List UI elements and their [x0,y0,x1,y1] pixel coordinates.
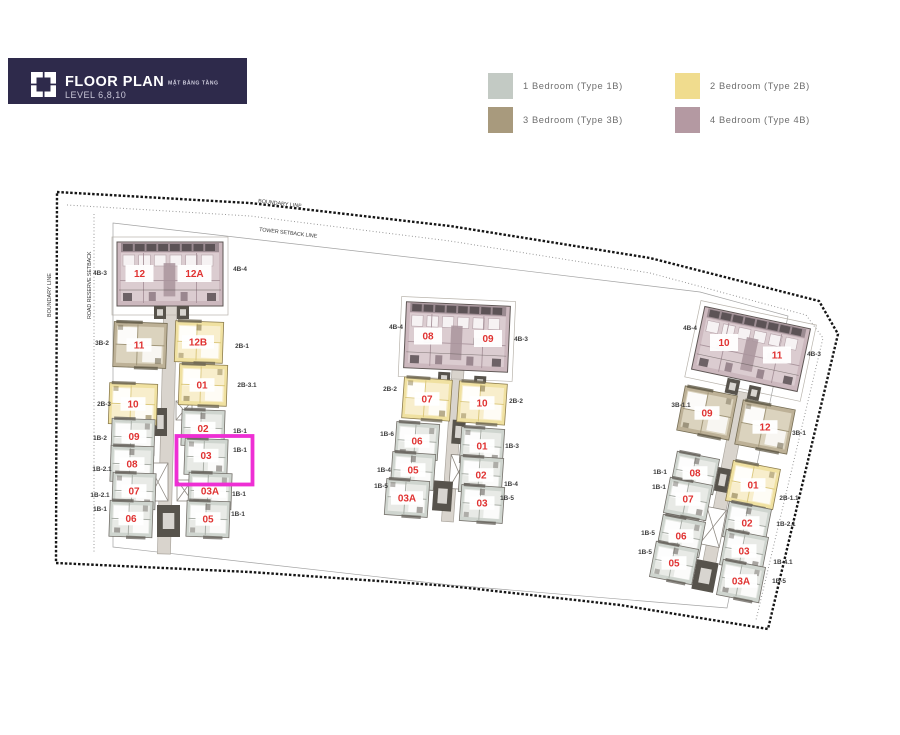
svg-text:FLOOR PLAN: FLOOR PLAN [65,74,164,90]
svg-text:12B: 12B [189,338,207,349]
svg-text:11: 11 [772,351,783,362]
svg-text:1B-4.1: 1B-4.1 [773,559,793,566]
svg-text:12: 12 [134,269,146,280]
svg-text:1B-1: 1B-1 [231,511,245,518]
svg-text:LEVEL 6,8,10: LEVEL 6,8,10 [65,90,126,100]
svg-text:1B-5: 1B-5 [641,530,655,537]
svg-text:12A: 12A [185,269,203,280]
svg-text:MẶT BẰNG TẦNG: MẶT BẰNG TẦNG [168,79,219,87]
svg-text:4B-4: 4B-4 [389,324,403,331]
svg-text:05: 05 [407,466,419,477]
svg-text:02: 02 [741,519,753,530]
svg-text:07: 07 [682,495,694,506]
svg-text:ROAD RESERVE SETBACK: ROAD RESERVE SETBACK [87,251,93,319]
svg-text:06: 06 [675,532,687,543]
svg-text:03: 03 [200,451,212,462]
svg-text:4B-3: 4B-3 [514,336,528,343]
svg-text:10: 10 [127,400,139,411]
svg-text:06: 06 [125,514,137,525]
svg-text:02: 02 [197,424,209,435]
svg-text:07: 07 [128,487,140,498]
svg-text:03A: 03A [201,487,219,498]
svg-text:4B-4: 4B-4 [233,266,247,273]
svg-text:3B-1.1: 3B-1.1 [671,402,691,409]
svg-text:10: 10 [718,338,730,349]
svg-text:4B-3: 4B-3 [807,351,821,358]
svg-text:09: 09 [128,432,140,443]
svg-text:01: 01 [747,481,759,492]
svg-text:08: 08 [422,332,434,343]
svg-text:1 Bedroom (Type 1B): 1 Bedroom (Type 1B) [523,81,623,91]
svg-text:3 Bedroom (Type 3B): 3 Bedroom (Type 3B) [523,115,623,125]
svg-text:BOUNDARY LINE: BOUNDARY LINE [258,199,303,210]
svg-text:07: 07 [421,395,433,406]
svg-text:BOUNDARY LINE: BOUNDARY LINE [47,273,53,317]
svg-text:1B-5: 1B-5 [500,495,514,502]
svg-text:1B-1: 1B-1 [93,506,107,513]
svg-text:1B-1: 1B-1 [652,484,666,491]
svg-text:08: 08 [126,460,138,471]
svg-text:03: 03 [476,499,488,510]
svg-text:1B-2.1: 1B-2.1 [776,521,796,528]
svg-text:1B-5: 1B-5 [374,483,388,490]
svg-text:2B-3.1: 2B-3.1 [237,382,257,389]
svg-text:03: 03 [738,547,750,558]
svg-text:4B-3: 4B-3 [93,270,107,277]
svg-text:03A: 03A [732,577,750,588]
svg-text:05: 05 [202,515,214,526]
svg-text:1B-2.1: 1B-2.1 [90,492,110,499]
svg-text:1B-2.1: 1B-2.1 [92,466,112,473]
svg-text:1B-3: 1B-3 [505,443,519,450]
svg-text:1B-1: 1B-1 [653,469,667,476]
svg-text:4B-4: 4B-4 [683,325,697,332]
svg-text:08: 08 [689,469,701,480]
svg-text:3B-2: 3B-2 [95,340,109,347]
svg-text:09: 09 [701,409,713,420]
svg-text:1B-5: 1B-5 [638,549,652,556]
svg-text:01: 01 [196,381,208,392]
svg-text:2B-2: 2B-2 [509,398,523,405]
svg-text:1B-1: 1B-1 [233,447,247,454]
svg-text:09: 09 [482,334,494,345]
svg-text:10: 10 [476,399,488,410]
svg-text:1B-5: 1B-5 [772,578,786,585]
svg-text:2B-2: 2B-2 [383,386,397,393]
svg-text:11: 11 [134,341,145,352]
svg-text:1B-4: 1B-4 [377,467,391,474]
svg-text:1B-4: 1B-4 [504,481,518,488]
svg-text:4 Bedroom (Type 4B): 4 Bedroom (Type 4B) [710,115,810,125]
svg-text:TOWER SETBACK LINE: TOWER SETBACK LINE [259,227,318,240]
svg-text:1B-6: 1B-6 [380,431,394,438]
svg-text:12: 12 [759,423,771,434]
svg-text:02: 02 [475,471,487,482]
svg-text:03A: 03A [398,494,416,505]
svg-text:2B-3: 2B-3 [97,401,111,408]
svg-text:06: 06 [411,437,423,448]
svg-text:05: 05 [668,559,680,570]
svg-text:2 Bedroom (Type 2B): 2 Bedroom (Type 2B) [710,81,810,91]
svg-text:2B-1.1: 2B-1.1 [779,495,799,502]
svg-text:3B-1: 3B-1 [792,430,806,437]
svg-text:1B-1: 1B-1 [232,491,246,498]
svg-text:01: 01 [476,442,488,453]
svg-text:1B-2: 1B-2 [93,435,107,442]
svg-text:2B-1: 2B-1 [235,343,249,350]
